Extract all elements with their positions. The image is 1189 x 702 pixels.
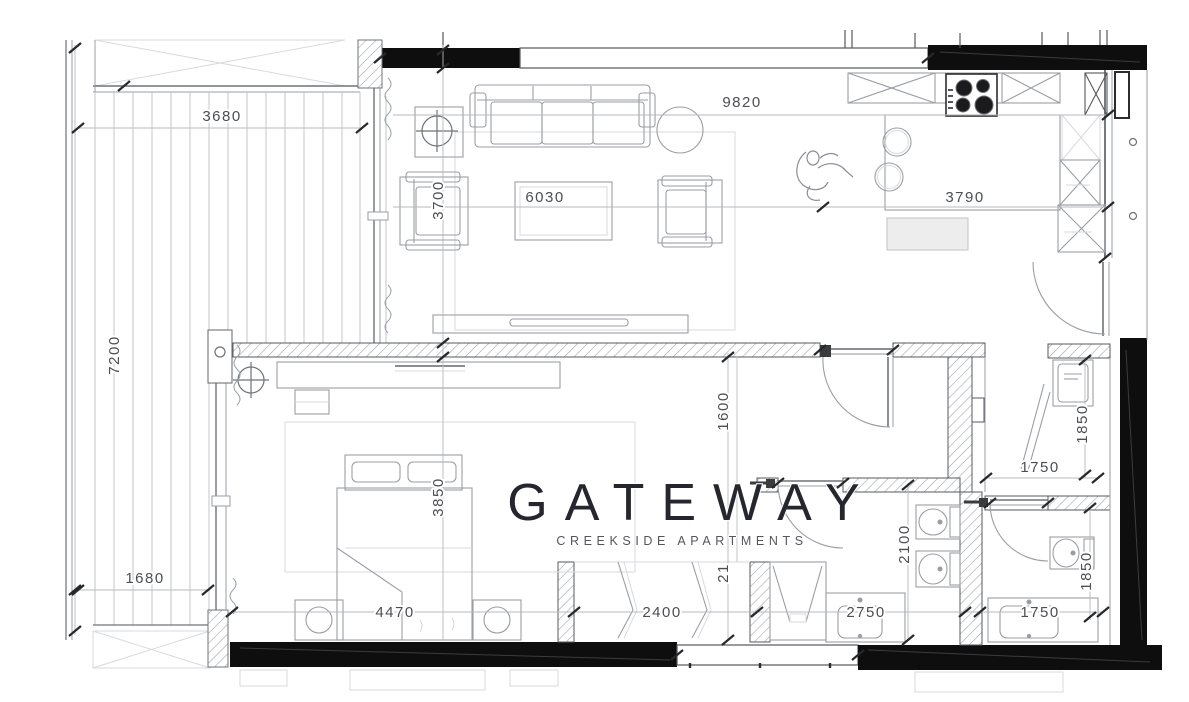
dim-bedroom-depth: 3850 (430, 477, 447, 516)
dim-closet-depth-partial: 21 (715, 563, 732, 583)
dim-closet-width: 2400 (642, 604, 681, 621)
dim-kitchen-width: 3790 (945, 189, 984, 206)
dim-balcony-left-height: 7200 (106, 335, 123, 374)
dim-bath2-width: 1750 (1020, 604, 1059, 621)
floor-plan-canvas: 3680 9820 6030 3790 1680 4470 2400 2750 … (0, 0, 1189, 702)
dim-balcony-top-width: 3680 (202, 108, 241, 125)
dim-bath1-width: 2750 (846, 604, 885, 621)
stove-icon (946, 74, 997, 116)
brand-name: GATEWAY (507, 474, 876, 532)
dim-living-left-depth: 3700 (430, 180, 447, 219)
dim-balcony-lower-width: 1680 (125, 570, 164, 587)
dim-laundry-width: 1750 (1020, 459, 1059, 476)
dim-laundry-depth: 1850 (1074, 404, 1091, 443)
brand-tagline: CREEKSIDE APARTMENTS (556, 534, 807, 548)
dim-bedroom-width: 4470 (375, 604, 414, 621)
dim-hallway-depth: 1600 (715, 391, 732, 430)
dim-bath2-depth: 1850 (1078, 551, 1095, 590)
dim-living-width: 6030 (525, 189, 564, 206)
dim-bath1-depth: 2100 (896, 524, 913, 563)
dim-overall-top-width: 9820 (722, 94, 761, 111)
